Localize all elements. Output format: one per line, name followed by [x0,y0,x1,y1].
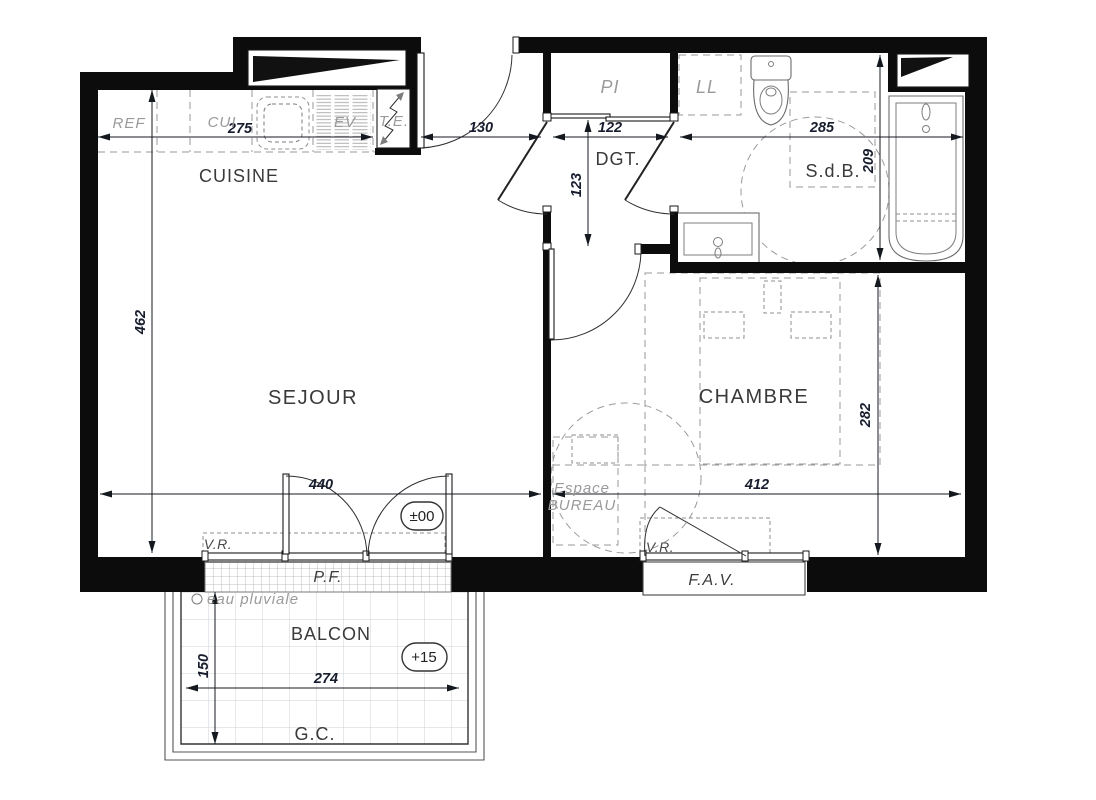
dim-label: 209 [861,149,877,174]
dim-bathroom-depth: 209 [861,55,884,260]
label-room-bathroom: S.d.B. [805,161,860,181]
label-fridge: REF [113,115,146,132]
label-roller-shutter-bedroom: V.R. [646,539,674,555]
dim-label: 130 [469,120,493,136]
label-room-living: SEJOUR [268,387,358,409]
label-room-kitchen: CUISINE [199,166,279,186]
dim-label: 122 [598,120,622,136]
label-roller-shutter-living: V.R. [204,536,232,552]
label-room-balcony: BALCON [291,624,371,644]
label-room-hall: DGT. [595,149,640,169]
dim-label: 285 [809,120,835,136]
dim-living-width: 440 [100,477,541,498]
dim-entry: 130 [421,120,541,141]
floor-plan-drawing: 275 130 122 285 462 [0,0,1096,800]
dim-hall-width: 122 [553,120,668,141]
kitchen-sink-icon [257,97,309,149]
kitchen-counter [98,90,421,152]
level-label: +15 [411,649,436,666]
hall-door-living [498,113,551,214]
office-zone [551,403,701,553]
label-rainwater: eau pluviale [207,591,299,608]
dim-bedroom-depth: 282 [858,275,882,555]
bathroom-window [897,54,969,87]
dim-bedroom-width: 412 [553,477,961,498]
dim-label: 462 [133,310,149,335]
label-bedroom-window: F.A.V. [688,572,735,589]
label-office-line2: BUREAU [548,497,617,514]
dim-label: 282 [858,403,874,428]
dim-label: 274 [313,671,338,687]
bathtub-icon [889,96,963,261]
dim-label: 412 [744,477,769,493]
bedroom-door [543,243,641,340]
label-office-line1: Espace [554,480,610,497]
label-room-bedroom: CHAMBRE [699,386,810,408]
level-label: ±00 [410,508,435,525]
dim-hall-depth: 123 [569,120,592,246]
toilet-icon [751,56,791,125]
label-closet: PI [600,77,619,97]
dim-label: 150 [196,654,212,678]
dim-label: 123 [569,173,585,197]
label-electrical-panel: T.E. [379,113,409,130]
dim-living-height: 462 [133,90,156,553]
dim-label: 440 [308,477,333,493]
label-living-window: P.F. [313,569,342,586]
vanity-sink-icon [675,213,759,263]
label-sink-unit: EV [334,114,357,131]
floor-plan-page: 275 130 122 285 462 [0,0,1096,800]
label-washing-machine: LL [696,77,718,97]
level-marker-living: ±00 [401,502,443,530]
label-cooker: CUI [208,114,237,131]
label-gutter: G.C. [294,724,335,744]
level-marker-balcony: +15 [402,643,447,671]
kitchen-window [248,50,406,86]
